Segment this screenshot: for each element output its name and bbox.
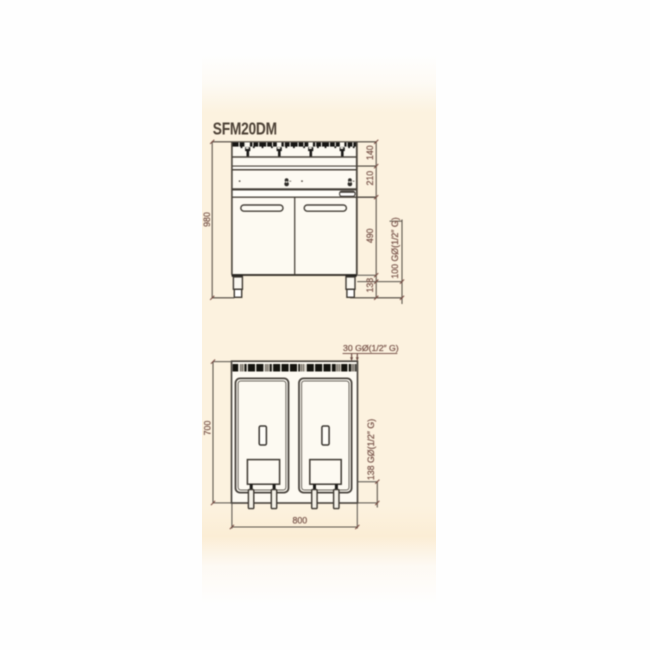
svg-text:490: 490 — [365, 228, 375, 243]
svg-text:800: 800 — [292, 516, 307, 526]
svg-text:100 GØ(1/2″ G): 100 GØ(1/2″ G) — [390, 217, 400, 278]
svg-text:138 GØ(1/2″ G): 138 GØ(1/2″ G) — [366, 419, 376, 480]
svg-text:138: 138 — [365, 278, 375, 293]
svg-text:700: 700 — [202, 421, 212, 436]
svg-text:140: 140 — [365, 145, 375, 160]
svg-text:980: 980 — [202, 212, 212, 227]
svg-text:SFM20DM: SFM20DM — [213, 119, 277, 139]
svg-text:210: 210 — [365, 171, 375, 186]
svg-text:30 GØ(1/2″ G): 30 GØ(1/2″ G) — [343, 343, 399, 353]
